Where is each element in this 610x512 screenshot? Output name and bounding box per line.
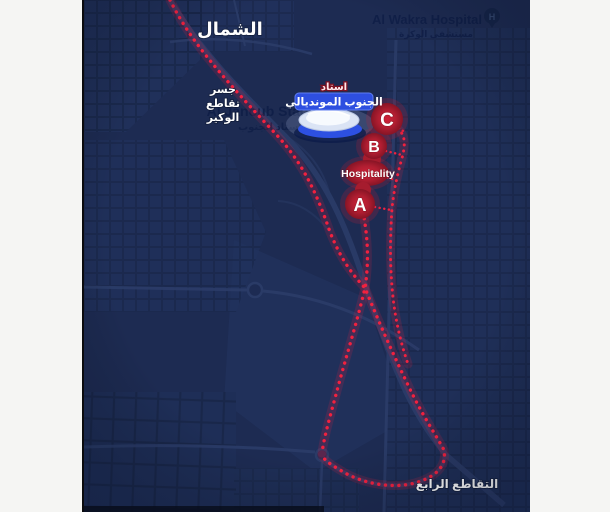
map-bottom-strip — [84, 506, 324, 512]
right-margin — [530, 0, 610, 512]
map-vignette — [84, 0, 530, 512]
left-margin — [0, 0, 82, 512]
map-canvas[interactable]: Al Wakra Hospital مستشفى الوكرة H Al Jan… — [84, 0, 530, 512]
screenshot-root: Al Wakra Hospital مستشفى الوكرة H Al Jan… — [0, 0, 610, 512]
